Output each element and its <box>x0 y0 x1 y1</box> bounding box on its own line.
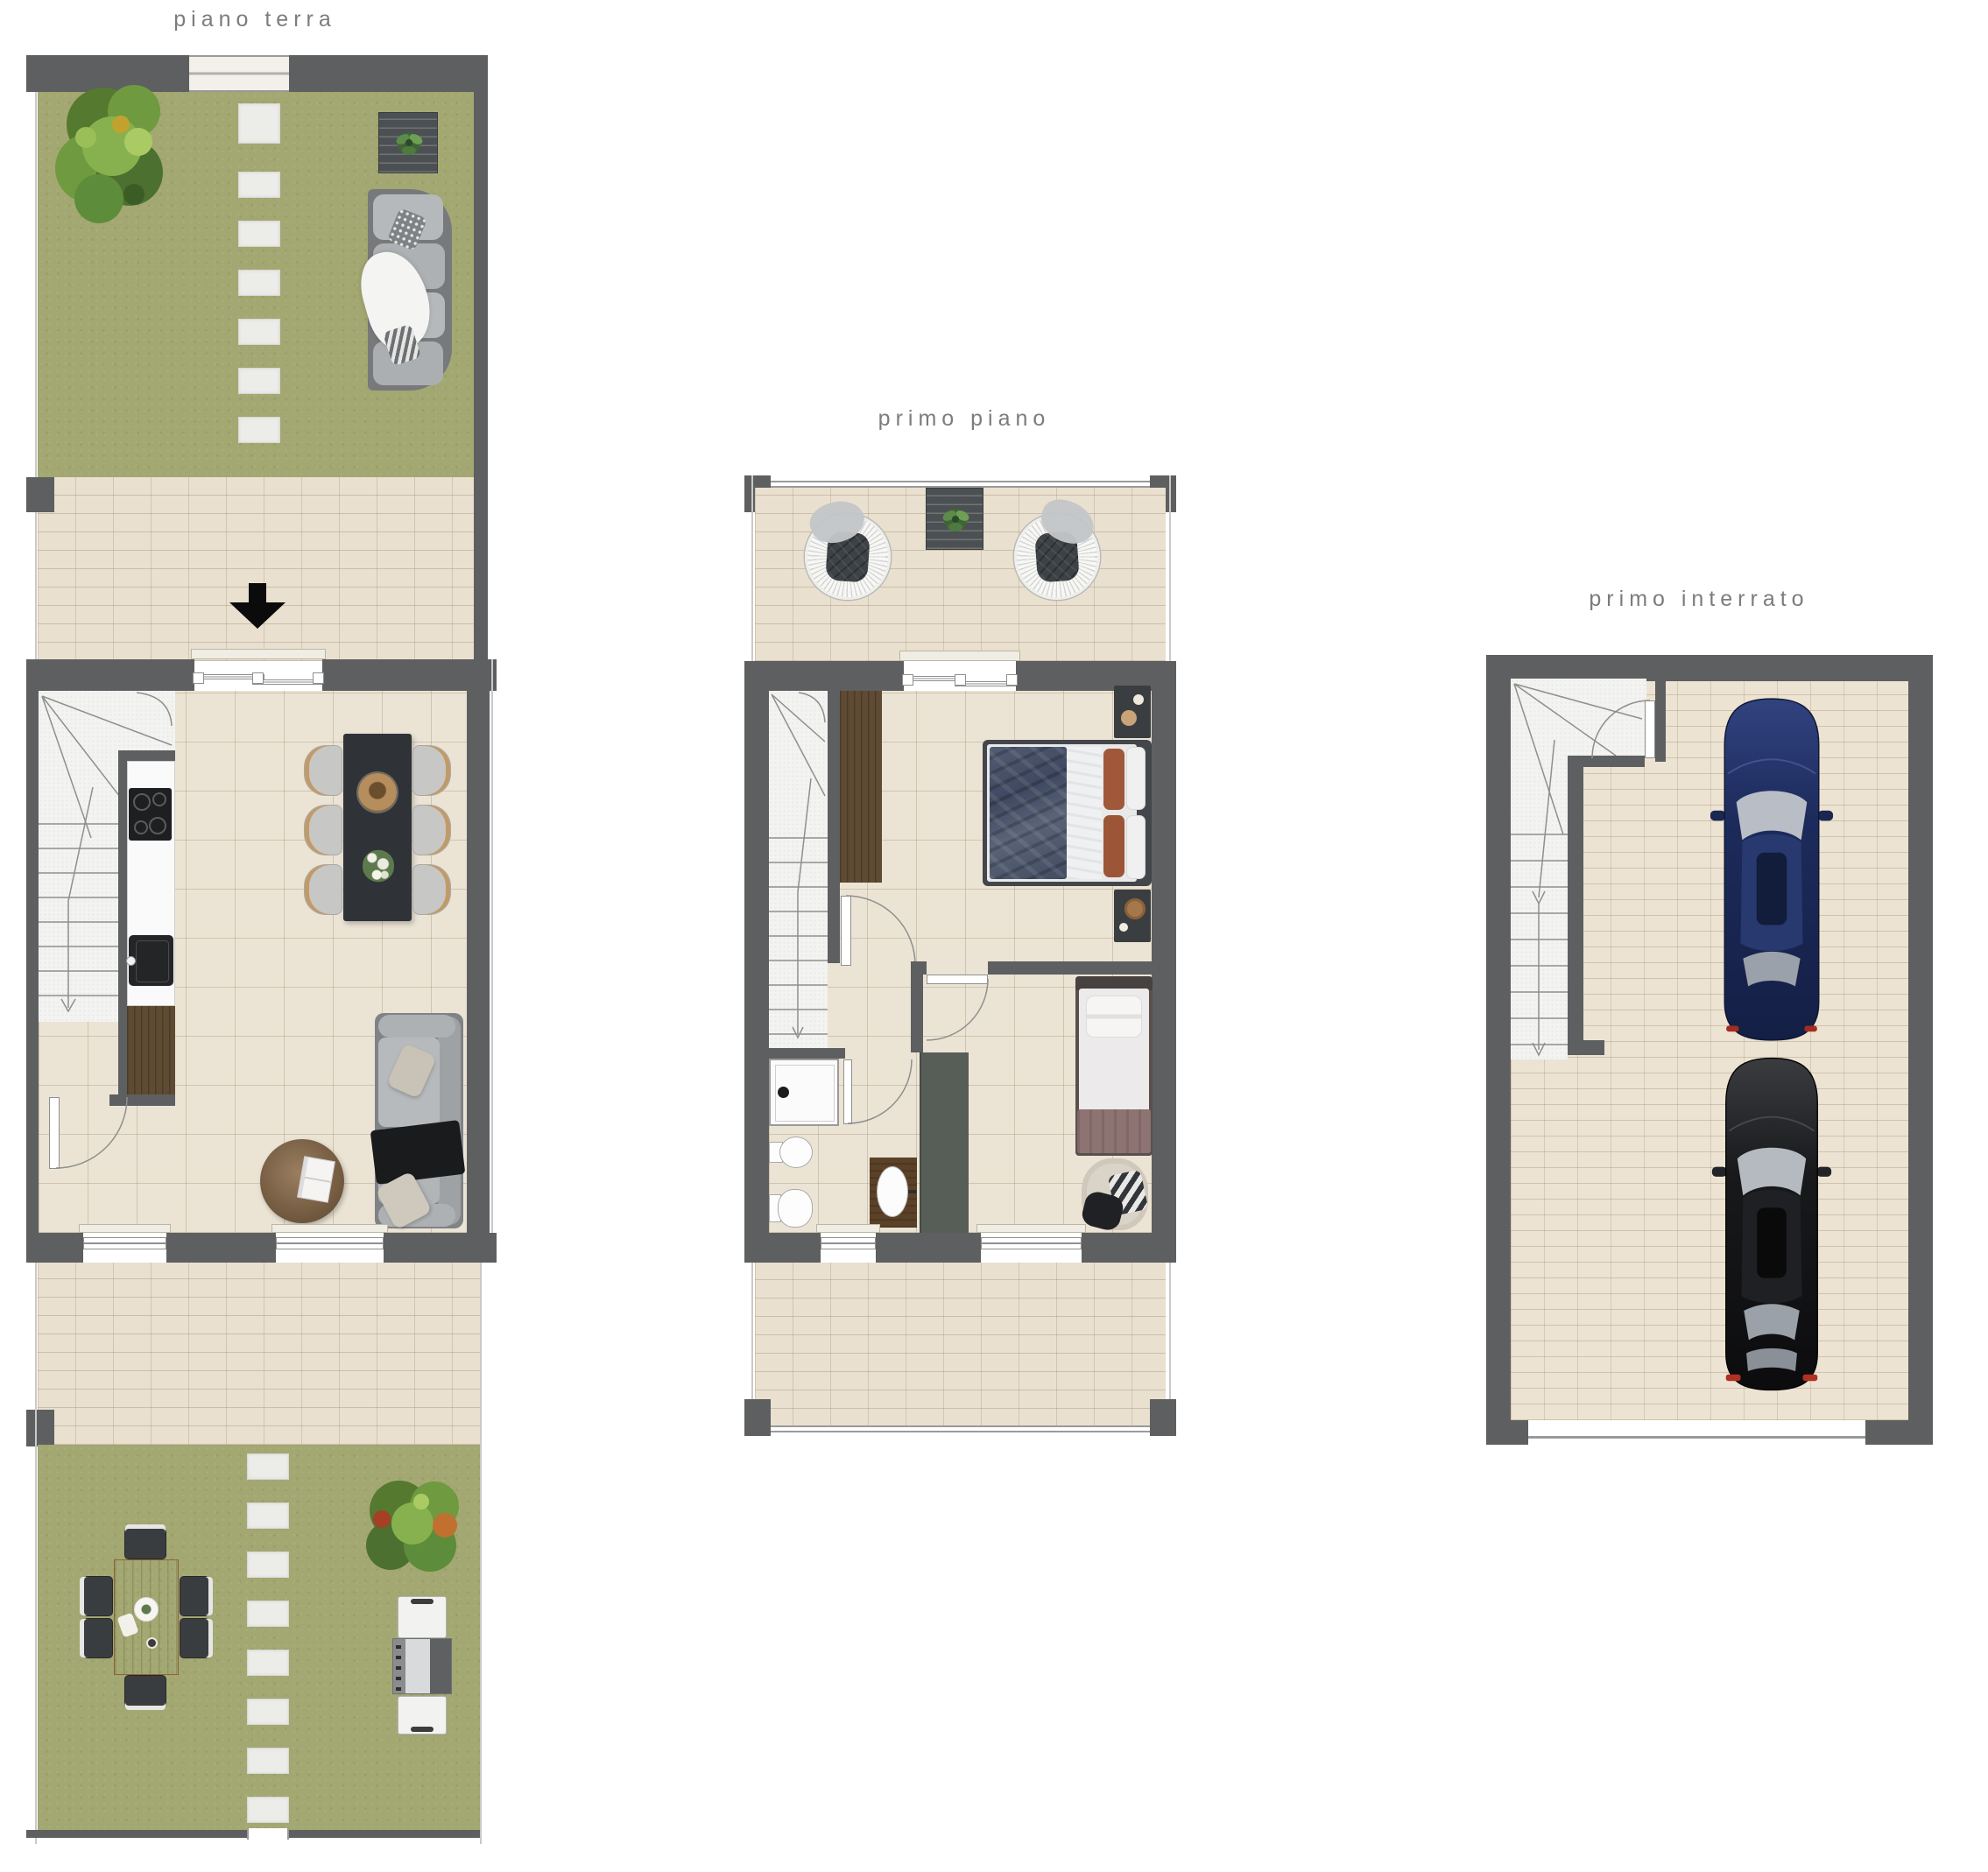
car-black-icon <box>1704 1052 1839 1396</box>
plan-title-primo-interrato: primo interrato <box>1524 587 1874 612</box>
car-blue-icon <box>1709 690 1835 1049</box>
garage-wall <box>1486 655 1933 681</box>
stair-wall <box>1568 756 1583 1040</box>
garage-entry-line <box>1528 1436 1865 1439</box>
wall-stub <box>1655 679 1666 762</box>
garage-wall <box>1486 1420 1528 1445</box>
floor-plan-primo-interrato: primo interrato <box>0 0 1988 1872</box>
stair-wall <box>1568 1040 1604 1055</box>
garage-wall <box>1486 655 1511 1445</box>
floor-plan-sheet: piano terra <box>0 0 1988 1872</box>
garage-door-swing <box>1592 700 1650 758</box>
garage-wall <box>1908 655 1933 1445</box>
garage-wall <box>1865 1420 1933 1445</box>
garage-entry-opening <box>1528 1420 1865 1445</box>
